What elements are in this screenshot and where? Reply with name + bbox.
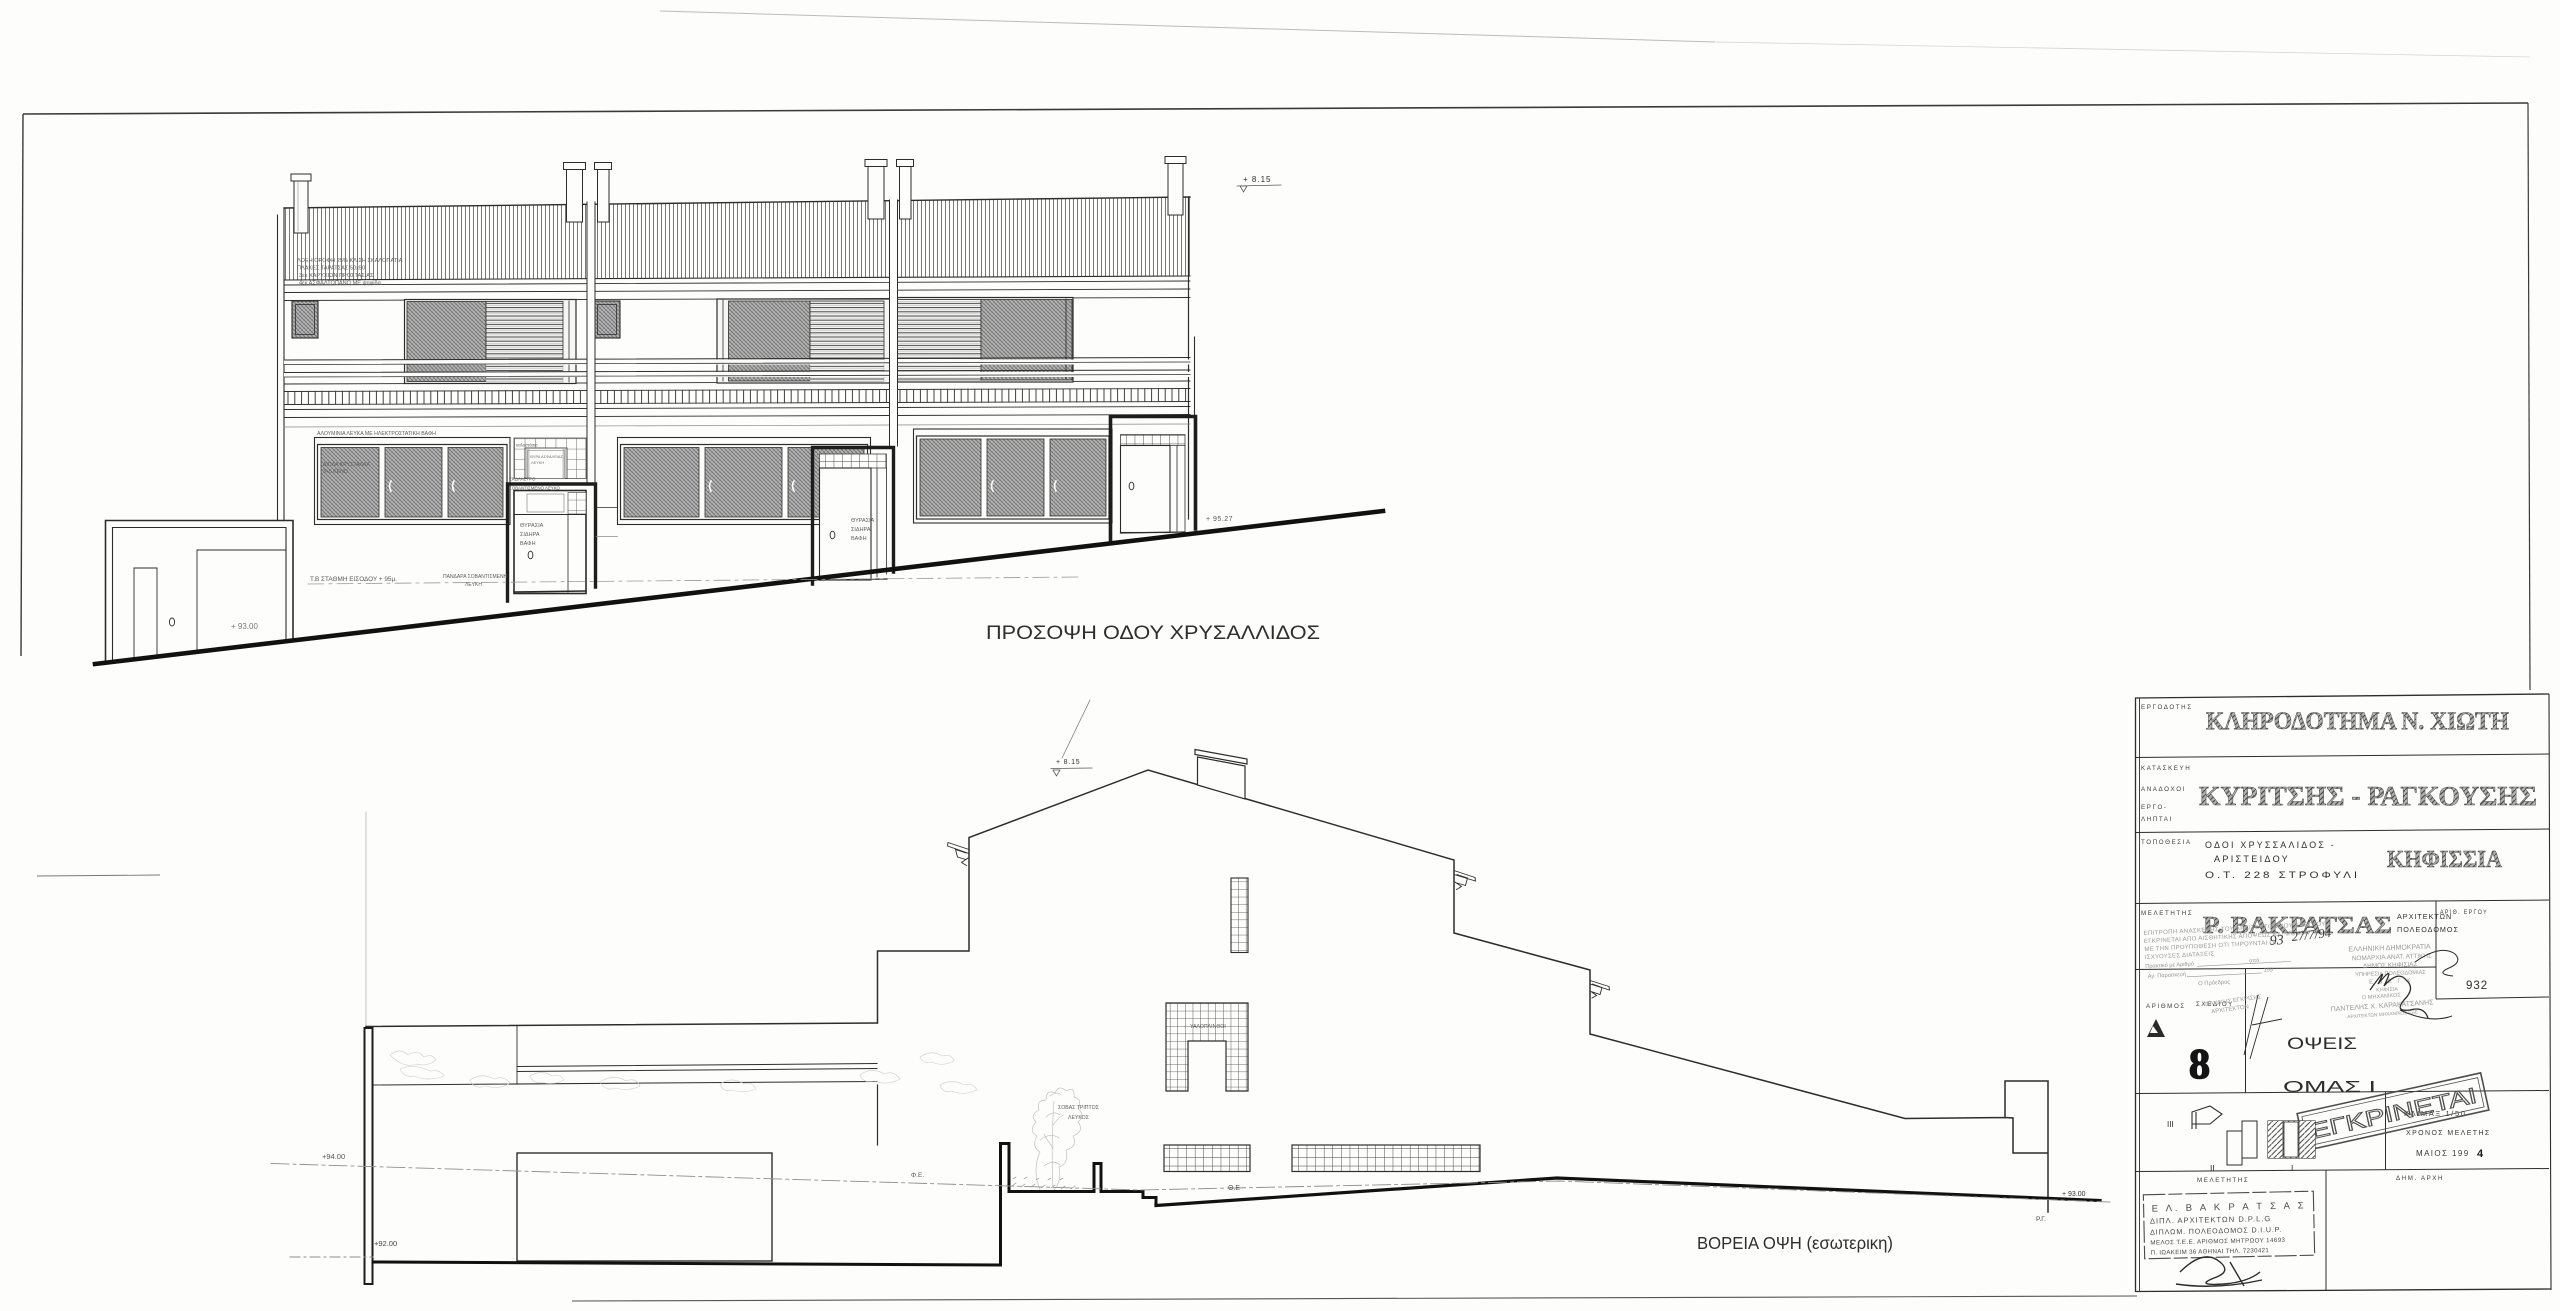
svg-text:ΣΙΔΗΡΑ: ΣΙΔΗΡΑ	[520, 532, 540, 538]
svg-text:ΑΝΑΔΟΧΟΙ: ΑΝΑΔΟΧΟΙ	[2141, 786, 2186, 793]
svg-text:+ 8.15: + 8.15	[1056, 759, 1080, 766]
svg-text:3εκ ΧΑΡΥΧΙΩΝ ΠΡΟΣΤΑΣΙΑΣ: 3εκ ΧΑΡΥΧΙΩΝ ΠΡΟΣΤΑΣΙΑΣ	[299, 273, 374, 279]
svg-text:+ 95.27: + 95.27	[1206, 516, 1233, 523]
svg-text:ΚΑΤΑΣΚΕΥΗ: ΚΑΤΑΣΚΕΥΗ	[2141, 765, 2191, 772]
svg-text:Ο.Τ. 228 ΣΤΡΟΦΥΛΙ: Ο.Τ. 228 ΣΤΡΟΦΥΛΙ	[2205, 870, 2360, 881]
svg-text:υαλοστάσιο: υαλοστάσιο	[516, 443, 538, 448]
svg-text:ΕΚΔΛΑΣΤΡΟ: ΕΚΔΛΑΣΤΡΟ	[509, 477, 536, 482]
svg-text:ΣΙΔΗΡΑ: ΣΙΔΗΡΑ	[851, 527, 871, 533]
svg-text:ΚΗΦΙΣΣΙΑ: ΚΗΦΙΣΣΙΑ	[2387, 847, 2503, 873]
svg-text:ΚΥΡΙΤΣΗΣ - ΡΑΓΚΟΥΣΗΣ: ΚΥΡΙΤΣΗΣ - ΡΑΓΚΟΥΣΗΣ	[2199, 781, 2537, 811]
svg-text:ΛΗΠΤΑΙ: ΛΗΠΤΑΙ	[2141, 816, 2173, 823]
svg-text:ΕΡΓΟ-: ΕΡΓΟ-	[2141, 804, 2168, 811]
svg-text:4: 4	[2477, 1148, 2484, 1160]
svg-text:ΒΑΦΗ: ΒΑΦΗ	[520, 541, 536, 547]
svg-text:ΠΡΟΣΟΨΗ ΟΔΟΥ ΧΡΥΣΑΛΛΙΔΟΣ: ΠΡΟΣΟΨΗ ΟΔΟΥ ΧΡΥΣΑΛΛΙΔΟΣ	[986, 623, 1320, 644]
svg-text:ΠΛΑΚΕΣ ΤΑΡΑΤΣΑΣ 50x50: ΠΛΑΚΕΣ ΤΑΡΑΤΣΑΣ 50x50	[297, 266, 365, 272]
svg-text:ΧΡΟΝΟΣ ΜΕΛΕΤΗΣ: ΧΡΟΝΟΣ ΜΕΛΕΤΗΣ	[2406, 1130, 2491, 1137]
svg-text:ΕΡΓΟΔΟΤΗΣ: ΕΡΓΟΔΟΤΗΣ	[2141, 704, 2193, 711]
svg-text:ΑΛΟΥΜΙΝΙΑ ΛΕΥΚΑ ΜΕ ΗΛΕΚΤΡΟΣ: ΑΛΟΥΜΙΝΙΑ ΛΕΥΚΑ ΜΕ ΗΛΕΚΤΡΟΣΤΑΤΙΚΗ ΒΑΦΗ	[317, 431, 436, 437]
svg-text:Φ.Ε.: Φ.Ε.	[911, 1172, 924, 1179]
svg-text:ΟΔΟΙ ΧΡΥΣΣΑΛΙΔΟΣ -: ΟΔΟΙ ΧΡΥΣΣΑΛΙΔΟΣ -	[2205, 840, 2336, 851]
svg-text:8: 8	[2189, 1042, 2210, 1088]
svg-text:ΑΡΙΣΤΕΙΔΟΥ: ΑΡΙΣΤΕΙΔΟΥ	[2214, 854, 2290, 865]
svg-text:ΛΕΥΚΟΣ: ΛΕΥΚΟΣ	[1068, 1115, 1089, 1121]
svg-text:ΛΕΥΚΗ: ΛΕΥΚΗ	[465, 582, 482, 588]
svg-text:ΟΜΑΣ Ι: ΟΜΑΣ Ι	[2283, 1079, 2376, 1096]
svg-text:ΘΥΡΑΣΙΑ: ΘΥΡΑΣΙΑ	[520, 523, 544, 529]
svg-text:ΜΕΛΕΤΗΤΗΣ: ΜΕΛΕΤΗΤΗΣ	[2141, 910, 2193, 917]
svg-text:+ 93.00: + 93.00	[2062, 1191, 2086, 1198]
svg-text:932: 932	[2466, 980, 2488, 992]
svg-text:ΙΙ: ΙΙ	[2210, 1163, 2215, 1173]
svg-text:από: από	[2249, 957, 2260, 965]
svg-text:ΟΨΕΙΣ: ΟΨΕΙΣ	[2287, 1034, 2357, 1053]
svg-text:ΔΙΠΛΑ ΚΡΥΣΤΑΛΛΑ: ΔΙΠΛΑ ΚΡΥΣΤΑΛΛΑ	[323, 462, 370, 468]
svg-text:Ρ.Γ.: Ρ.Γ.	[2036, 1216, 2046, 1223]
svg-text:Θ.Ε: Θ.Ε	[1228, 1185, 1240, 1192]
svg-text:Τ.Β ΣΤΑΘΜΗ ΕΙΣΟΔΟΥ + 95μ.: Τ.Β ΣΤΑΘΜΗ ΕΙΣΟΔΟΥ + 95μ.	[310, 576, 397, 583]
svg-text:ΑΡΧΙΤΕΚΤΩΝ: ΑΡΧΙΤΕΚΤΩΝ	[2397, 912, 2452, 921]
svg-text:+94.00: +94.00	[322, 1152, 345, 1161]
svg-text:ΠΑΝΔΑΡΑ ΣΟΒΑΝΤΙΣΜΕΝΗ: ΠΑΝΔΑΡΑ ΣΟΒΑΝΤΙΣΜΕΝΗ	[443, 574, 508, 580]
svg-text:+92.00: +92.00	[374, 1239, 397, 1248]
svg-text:ΣΟΒΑΣ ΤΡΙΠΤΟΣ: ΣΟΒΑΣ ΤΡΙΠΤΟΣ	[1058, 1105, 1099, 1111]
svg-text:ΤΟΠΟΘΕΣΙΑ: ΤΟΠΟΘΕΣΙΑ	[2141, 839, 2192, 846]
svg-text:+ 93.00: + 93.00	[231, 622, 258, 631]
svg-text:ΘΥΡΑ ΑΣΦΑΛΕΙΑΣ: ΘΥΡΑ ΑΣΦΑΛΕΙΑΣ	[530, 454, 564, 459]
svg-text:ΑΡΙΘΜΟΣ: ΑΡΙΘΜΟΣ	[2146, 1003, 2186, 1010]
svg-text:ΠΟΛΕΟΔΟΜΟΣ: ΠΟΛΕΟΔΟΜΟΣ	[2397, 925, 2459, 934]
svg-text:+ 8.15: + 8.15	[1243, 175, 1271, 184]
svg-text:ΔΗΜ. ΑΡΧΗ: ΔΗΜ. ΑΡΧΗ	[2396, 1175, 2444, 1182]
svg-text:ΒΟΡΕΙΑ ΟΨΗ (εσωτερικη): ΒΟΡΕΙΑ ΟΨΗ (εσωτερικη)	[1697, 1233, 1893, 1253]
svg-text:199: 199	[2263, 967, 2273, 973]
svg-text:ΒΑΦΗ: ΒΑΦΗ	[851, 536, 867, 542]
svg-text:ΚΛΗΡΟΔΟΤΗΜΑ Ν. ΧΙΩΤΗ: ΚΛΗΡΟΔΟΤΗΜΑ Ν. ΧΙΩΤΗ	[2206, 708, 2510, 735]
svg-text:ΛΟΞΗ ΟΡΟΦΗ 25% ΚΛΙΣΗ ΣΚΑΛΟΠΑ: ΛΟΞΗ ΟΡΟΦΗ 25% ΚΛΙΣΗ ΣΚΑΛΟΠΑΤΙΑ	[297, 258, 403, 264]
svg-text:93: 93	[2269, 933, 2284, 949]
svg-text:ΘΥΡΑΣΙΑ: ΘΥΡΑΣΙΑ	[851, 518, 875, 524]
svg-text:Ι: Ι	[2291, 1163, 2293, 1173]
svg-text:ΥΑΛΟΠΛΙΝΘΟΙ: ΥΑΛΟΠΛΙΝΘΟΙ	[1190, 1024, 1226, 1030]
svg-text:4εκ ΑΣΦΑΛΤΟΠΑΝΟ ΜΕ ψηφίδα: 4εκ ΑΣΦΑΛΤΟΠΑΝΟ ΜΕ ψηφίδα	[299, 281, 382, 287]
svg-text:ΛΕΥΚΗ: ΛΕΥΚΗ	[531, 460, 544, 465]
svg-text:ΜΕΛΕΤΗΤΗΣ: ΜΕΛΕΤΗΤΗΣ	[2197, 1177, 2249, 1184]
svg-text:3+5 ΚΕΝΟ: 3+5 ΚΕΝΟ	[323, 469, 348, 475]
svg-text:ΙΙΙ: ΙΙΙ	[2167, 1120, 2174, 1129]
svg-text:ΜΑΙΟΣ 199: ΜΑΙΟΣ 199	[2416, 1149, 2470, 1158]
